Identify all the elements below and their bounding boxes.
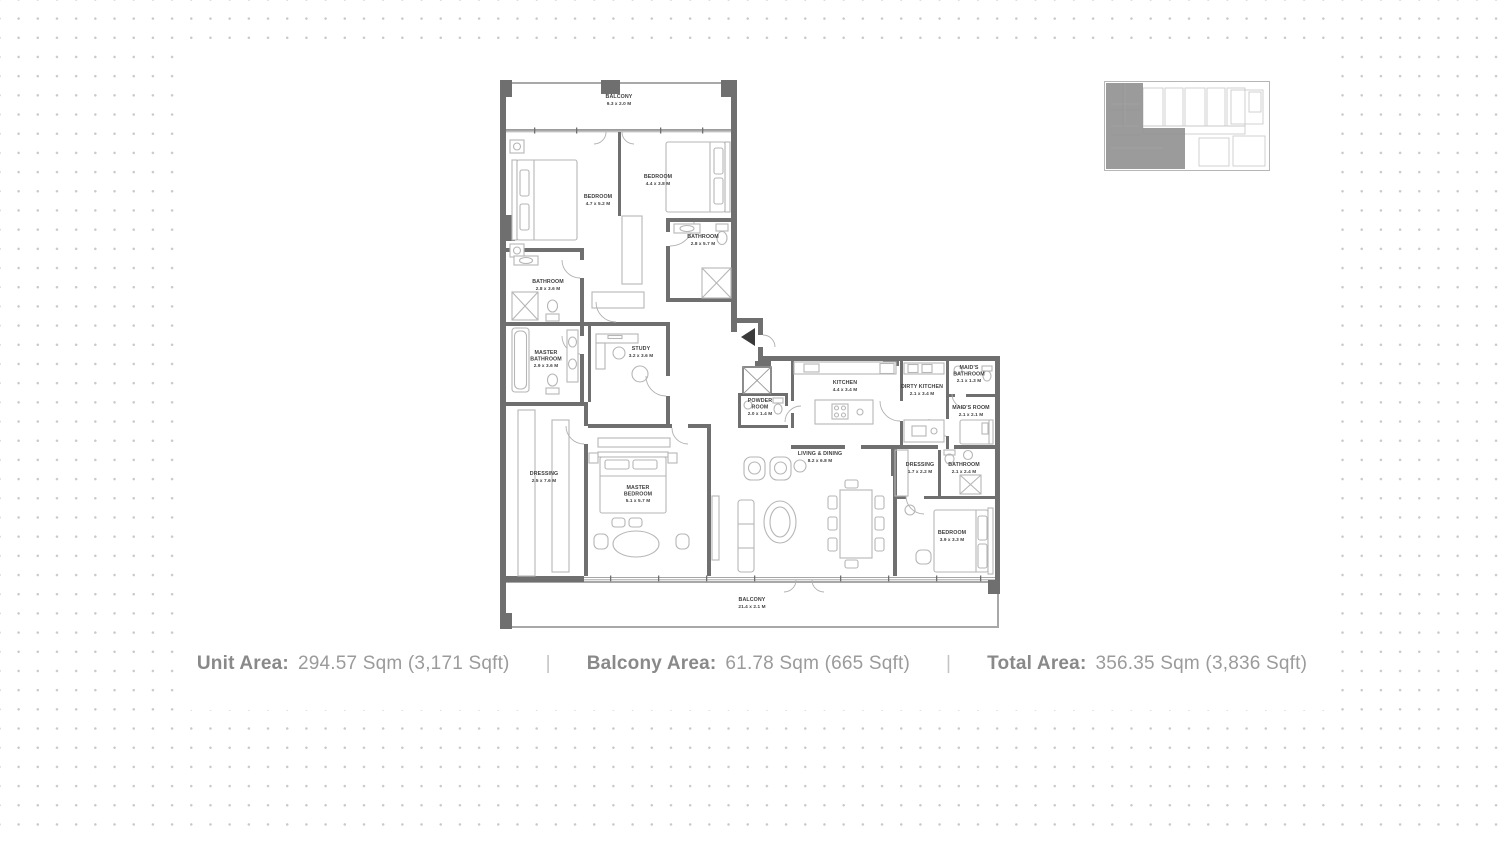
unit-area-value: 294.57 Sqm (3,171 Sqft) [298,653,510,675]
bedroom-1-furniture [510,140,577,257]
room-dims: 2.8 x 3.6 M [536,286,561,291]
plan-canvas: BALCONY 9.3 x 2.0 M BEDROOM 4.7 x 5.2 M … [178,52,1326,710]
balcony-top-label: BALCONY 9.3 x 2.0 M [606,94,633,106]
study-label: STUDY 3.2 x 3.6 M [629,346,654,358]
total-area-label: Total Area: [987,653,1086,675]
room-dims: 2.1 x 3.4 M [910,391,935,396]
room-dims: 2.0 x 1.4 M [748,411,773,416]
room-dims: 2.1 x 1.3 M [957,378,982,383]
study-furniture [596,334,648,382]
entry-door-icon [741,328,755,346]
master-bedroom-label: MASTER BEDROOM 5.1 x 5.7 M [624,485,653,503]
master-bedroom-furniture [589,452,689,557]
maids-room-label: MAID'S ROOM 2.1 x 2.1 M [952,405,990,417]
room-name: BATHROOM [953,372,985,378]
dressing-2-label: DRESSING 1.7 x 2.2 M [906,462,934,474]
powder-room-label: POWDER ROOM 2.0 x 1.4 M [748,398,773,416]
kitchen-label: KITCHEN 4.4 x 3.4 M [833,380,858,392]
floor-plan: BALCONY 9.3 x 2.0 M BEDROOM 4.7 x 5.2 M … [488,76,1012,638]
room-dims: 9.3 x 2.0 M [607,101,632,106]
room-name: STUDY [632,346,651,352]
room-name: DRESSING [530,471,558,477]
room-name: BALCONY [739,597,766,603]
room-name: MAID'S [960,365,979,371]
room-name: BATHROOM [687,234,719,240]
bedroom-2-furniture [666,142,730,212]
bathroom-1-label: BATHROOM 2.8 x 3.6 M [532,279,564,291]
room-name: BEDROOM [624,492,653,498]
room-dims: 2.9 x 3.6 M [534,363,559,368]
room-name: KITCHEN [833,380,857,386]
separator: | [946,653,951,675]
room-dims: 8.2 x 6.8 M [808,458,833,463]
room-name: DRESSING [906,462,934,468]
bathroom-2-label: BATHROOM 2.8 x 5.7 M [687,234,719,246]
room-name: BATHROOM [948,462,980,468]
total-area-value: 356.35 Sqm (3,836 Sqft) [1095,653,1307,675]
room-name: LIVING & DINING [798,451,842,457]
room-name: BEDROOM [938,530,967,536]
kitchen-furniture [794,362,896,424]
room-dims: 4.4 x 3.8 M [646,181,671,186]
room-name: POWDER [748,398,773,404]
room-dims: 3.9 x 3.3 M [940,537,965,542]
bathroom-3-label: BATHROOM 2.1 x 2.4 M [948,462,980,474]
room-name: ROOM [752,405,769,411]
dirty-kitchen-label: DIRTY KITCHEN 2.1 x 3.4 M [901,384,943,396]
dirty-kitchen-furniture [904,363,944,442]
room-dims: 2.5 x 7.6 M [532,478,557,483]
room-name: BATHROOM [532,279,564,285]
bedroom-1-label: BEDROOM 4.7 x 5.2 M [584,194,613,206]
room-dims: 21.4 x 2.1 M [738,604,765,609]
maids-bathroom-label: MAID'S BATHROOM 2.1 x 1.3 M [953,365,985,383]
key-plan [1103,80,1271,172]
room-dims: 3.2 x 3.6 M [629,353,654,358]
room-dims: 5.1 x 5.7 M [626,498,651,503]
room-name: BEDROOM [644,174,673,180]
maids-room-furniture [960,420,993,444]
room-name: MAID'S ROOM [952,405,990,411]
room-dims: 4.4 x 3.4 M [833,387,858,392]
room-name: BEDROOM [584,194,613,200]
master-bathroom-label: MASTER BATHROOM 2.9 x 3.6 M [530,350,562,368]
room-name: DIRTY KITCHEN [901,384,943,390]
room-name: BALCONY [606,94,633,100]
living-dining-furniture [712,457,884,572]
room-dims: 2.8 x 5.7 M [691,241,716,246]
balcony-area-value: 61.78 Sqm (665 Sqft) [725,653,910,675]
balcony-bottom-label: BALCONY 21.4 x 2.1 M [738,597,765,609]
room-dims: 2.1 x 2.1 M [959,412,984,417]
unit-area-label: Unit Area: [197,653,289,675]
balcony-area-label: Balcony Area: [587,653,717,675]
room-name: MASTER [535,350,558,356]
area-summary: Unit Area: 294.57 Sqm (3,171 Sqft) | Bal… [178,653,1326,675]
room-name: BATHROOM [530,357,562,363]
shaft [743,367,771,394]
dressing-master-label: DRESSING 2.5 x 7.6 M [530,471,558,483]
separator: | [546,653,551,675]
room-dims: 2.1 x 2.4 M [952,469,977,474]
room-name: MASTER [627,485,650,491]
room-dims: 4.7 x 5.2 M [586,201,611,206]
room-dims: 1.7 x 2.2 M [908,469,933,474]
